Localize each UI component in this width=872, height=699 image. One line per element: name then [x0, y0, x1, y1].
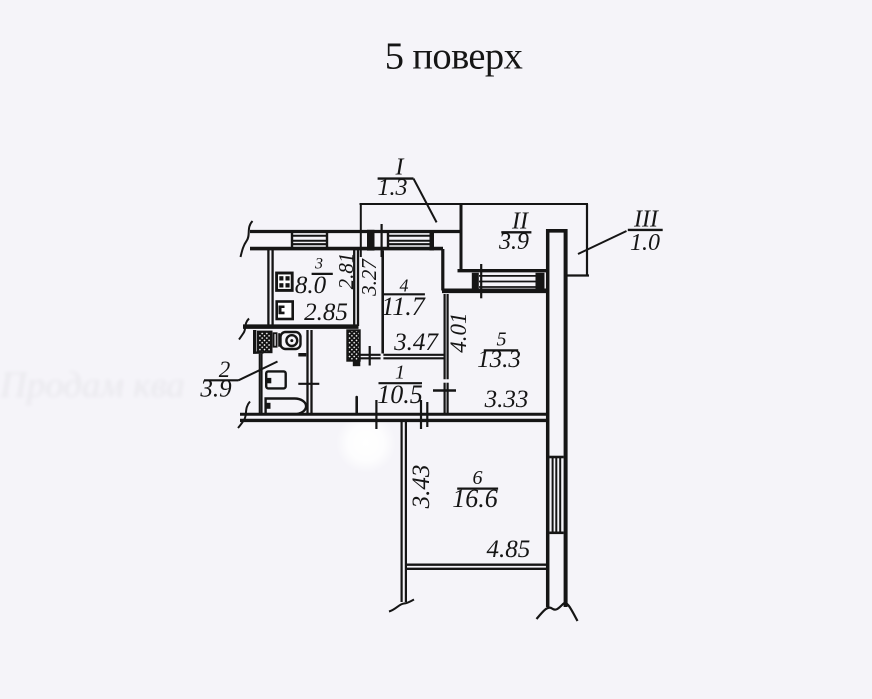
svg-text:3.9: 3.9: [498, 229, 529, 255]
svg-text:11.7: 11.7: [381, 292, 426, 321]
svg-text:10.5: 10.5: [377, 380, 423, 409]
svg-text:3.9: 3.9: [199, 376, 232, 403]
svg-text:4.85: 4.85: [487, 536, 531, 563]
svg-text:III: III: [633, 207, 659, 233]
svg-text:1.3: 1.3: [378, 175, 408, 201]
svg-text:3: 3: [314, 256, 323, 273]
svg-text:16.6: 16.6: [452, 484, 498, 513]
svg-text:8.0: 8.0: [295, 272, 327, 299]
svg-text:2.85: 2.85: [304, 299, 348, 326]
svg-text:4.01: 4.01: [446, 312, 471, 352]
svg-text:5 поверх: 5 поверх: [385, 36, 523, 78]
svg-text:3.27: 3.27: [357, 258, 381, 297]
svg-text:3.43: 3.43: [408, 465, 435, 510]
svg-text:13.3: 13.3: [477, 346, 521, 373]
svg-text:3.47: 3.47: [393, 329, 439, 356]
svg-text:Продам ква: Продам ква: [0, 365, 185, 406]
svg-text:3.33: 3.33: [484, 386, 529, 413]
svg-text:2.81: 2.81: [334, 253, 358, 290]
svg-text:1.0: 1.0: [630, 230, 660, 256]
